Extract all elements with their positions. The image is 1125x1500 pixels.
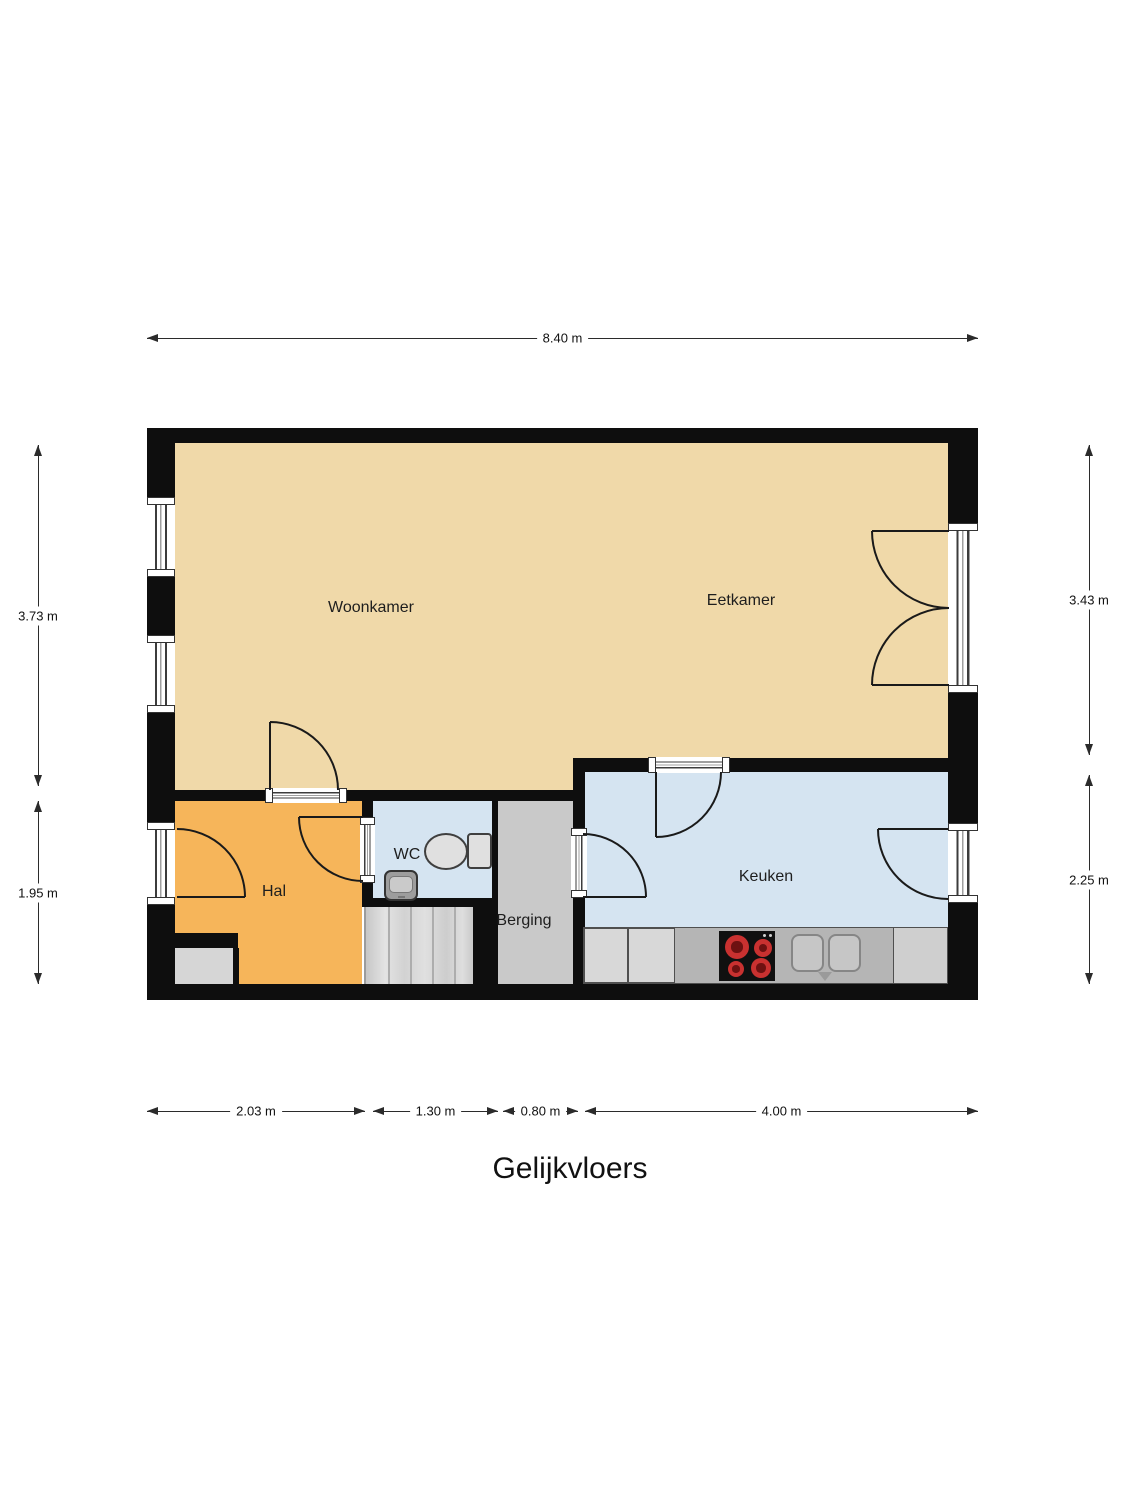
staircase xyxy=(364,907,473,984)
arrowhead-down-icon xyxy=(34,973,42,984)
wall-wc-bottom xyxy=(362,898,498,907)
room-keuken-floor xyxy=(585,772,948,927)
window-cap xyxy=(948,823,978,831)
wall-divider-left xyxy=(175,790,265,801)
arrowhead-up-icon xyxy=(1085,445,1093,456)
room-label-keuken: Keuken xyxy=(739,868,793,886)
french-door-opening xyxy=(948,523,978,693)
entry-niche-floor xyxy=(175,948,233,984)
door-jamb xyxy=(265,788,273,803)
woonkamer-hal-door-opening xyxy=(265,788,347,803)
arrowhead-right-icon xyxy=(354,1107,365,1115)
kitchen-sink-basin xyxy=(828,934,861,972)
window-cap xyxy=(147,569,175,577)
window-cap xyxy=(147,822,175,830)
floorplan-page: Woonkamer Eetkamer Hal WC Berging Keuken… xyxy=(0,0,1125,1500)
burner-icon xyxy=(728,961,744,977)
dimension-label: 1.30 m xyxy=(410,1104,462,1119)
dimension-label: 3.43 m xyxy=(1065,591,1113,610)
window-cap xyxy=(948,685,978,693)
berging-keuken-door-opening xyxy=(571,828,587,898)
keuken-back-door-opening xyxy=(948,823,978,903)
window-cap xyxy=(948,523,978,531)
wall-top xyxy=(147,428,978,443)
wall-hal-wc xyxy=(362,801,373,817)
window-cap xyxy=(147,897,175,905)
arrowhead-left-icon xyxy=(147,1107,158,1115)
wall-stairs-berging xyxy=(473,907,498,984)
window-cap xyxy=(948,895,978,903)
toilet-bowl-icon xyxy=(424,833,468,870)
wall-left-segment xyxy=(147,577,175,635)
door-jamb xyxy=(722,757,730,773)
wall-right-segment xyxy=(948,903,978,1000)
wall-right-segment xyxy=(948,428,978,523)
door-jamb xyxy=(360,817,375,825)
dimension-label: 0.80 m xyxy=(515,1104,567,1119)
window-woonkamer-1 xyxy=(147,497,175,577)
arrowhead-right-icon xyxy=(487,1107,498,1115)
arrowhead-left-icon xyxy=(585,1107,596,1115)
stair-tread-line xyxy=(410,907,412,984)
arrowhead-down-icon xyxy=(1085,744,1093,755)
kitchen-cabinet xyxy=(893,928,947,983)
arrowhead-left-icon xyxy=(503,1107,514,1115)
kitchen-cabinet xyxy=(628,928,675,983)
wall-divider-right xyxy=(730,758,948,772)
window-cap xyxy=(147,635,175,643)
cooktop-control-dot xyxy=(769,934,772,937)
wall-niche-top xyxy=(147,933,238,948)
eetkamer-keuken-door-opening xyxy=(648,757,730,773)
wall-divider-left xyxy=(347,790,573,801)
dimension-label: 4.00 m xyxy=(756,1104,808,1119)
arrowhead-up-icon xyxy=(34,801,42,812)
wall-left-segment xyxy=(147,713,175,822)
wall-right-segment xyxy=(948,693,978,823)
toilet-tank-icon xyxy=(467,833,492,869)
room-label-berging: Berging xyxy=(496,912,551,930)
arrowhead-left-icon xyxy=(373,1107,384,1115)
arrowhead-right-icon xyxy=(567,1107,578,1115)
dimension-label: 2.03 m xyxy=(230,1104,282,1119)
window-cap xyxy=(147,497,175,505)
wall-berging-keuken xyxy=(573,758,585,828)
hal-wc-door-opening xyxy=(360,817,375,883)
cooktop-control-dot xyxy=(763,934,766,937)
window-cap xyxy=(147,705,175,713)
page-title: Gelijkvloers xyxy=(140,1152,1000,1186)
stair-tread-line xyxy=(454,907,456,984)
wall-wc-berging xyxy=(492,801,498,898)
wall-bottom xyxy=(147,984,978,1000)
door-jamb xyxy=(648,757,656,773)
dimension-label: 8.40 m xyxy=(537,331,589,346)
door-jamb xyxy=(360,875,375,883)
stair-tread-line xyxy=(432,907,434,984)
dimension-label: 1.95 m xyxy=(14,883,62,902)
cooktop-icon xyxy=(719,931,775,981)
wall-left-segment xyxy=(147,428,175,497)
front-door-opening xyxy=(147,822,175,905)
burner-icon xyxy=(754,939,772,957)
door-jamb xyxy=(571,828,587,836)
wall-niche-right xyxy=(233,948,239,984)
dimension-label: 2.25 m xyxy=(1065,870,1113,889)
room-berging-floor xyxy=(498,801,573,984)
dimension-label: 3.73 m xyxy=(14,606,62,625)
door-jamb xyxy=(339,788,347,803)
door-jamb xyxy=(571,890,587,898)
arrowhead-up-icon xyxy=(34,445,42,456)
room-label-eetkamer: Eetkamer xyxy=(707,592,775,610)
arrowhead-up-icon xyxy=(1085,775,1093,786)
arrowhead-right-icon xyxy=(967,334,978,342)
room-label-wc: WC xyxy=(394,846,421,864)
window-woonkamer-2 xyxy=(147,635,175,713)
arrowhead-down-icon xyxy=(34,775,42,786)
room-label-hal: Hal xyxy=(262,883,286,901)
hand-basin-inner xyxy=(389,876,413,893)
burner-icon xyxy=(725,935,749,959)
burner-icon xyxy=(751,958,771,978)
room-label-woonkamer: Woonkamer xyxy=(328,599,414,617)
arrowhead-down-icon xyxy=(1085,973,1093,984)
kitchen-cabinet xyxy=(584,928,628,983)
stair-tread-line xyxy=(388,907,390,984)
wall-left-segment xyxy=(147,903,175,1000)
hand-basin-drain xyxy=(398,896,405,898)
arrowhead-right-icon xyxy=(967,1107,978,1115)
kitchen-sink-basin xyxy=(791,934,824,972)
arrowhead-left-icon xyxy=(147,334,158,342)
